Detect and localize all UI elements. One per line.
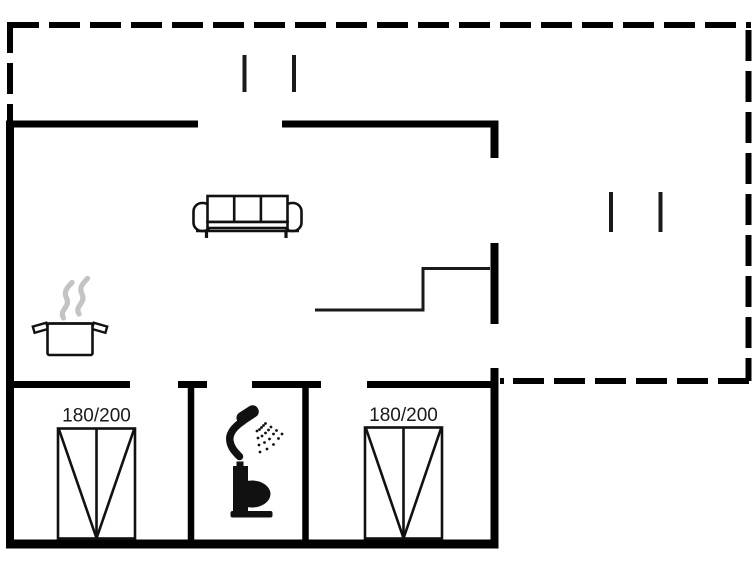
steam-icon [62,279,87,319]
step-line [315,269,490,311]
bed-left: 180/200 [58,406,135,539]
bed-right: 180/200 [365,405,442,539]
steam-wisp [78,279,88,315]
bed-duvet-line [366,429,403,538]
pot-body [48,324,93,356]
shower-hose [230,421,243,457]
floor-plan-svg: 180/200 180/200 [0,0,755,566]
terrace-outline [8,22,755,381]
bed-duvet-line [404,429,441,538]
toilet-icon [231,462,273,518]
toilet-bowl [234,481,271,508]
sofa-icon [194,196,302,238]
double-bed-icon [58,429,135,539]
sofa-seat [208,222,288,228]
steam-wisp [62,283,72,319]
shower-spray-dots [256,422,284,453]
bed-size-label: 180/200 [62,406,131,427]
cooking-pot-icon [33,279,107,356]
window-marks [245,55,661,232]
toilet-base [231,511,273,518]
sofa-back [208,196,288,222]
double-bed-icon [365,428,442,539]
bed-size-label: 180/200 [369,405,438,426]
bed-duvet-line [97,430,134,538]
stairs [315,269,490,311]
floor-plan: 180/200 180/200 [0,0,755,566]
shower-head-icon [230,403,284,457]
bed-duvet-line [59,430,96,538]
